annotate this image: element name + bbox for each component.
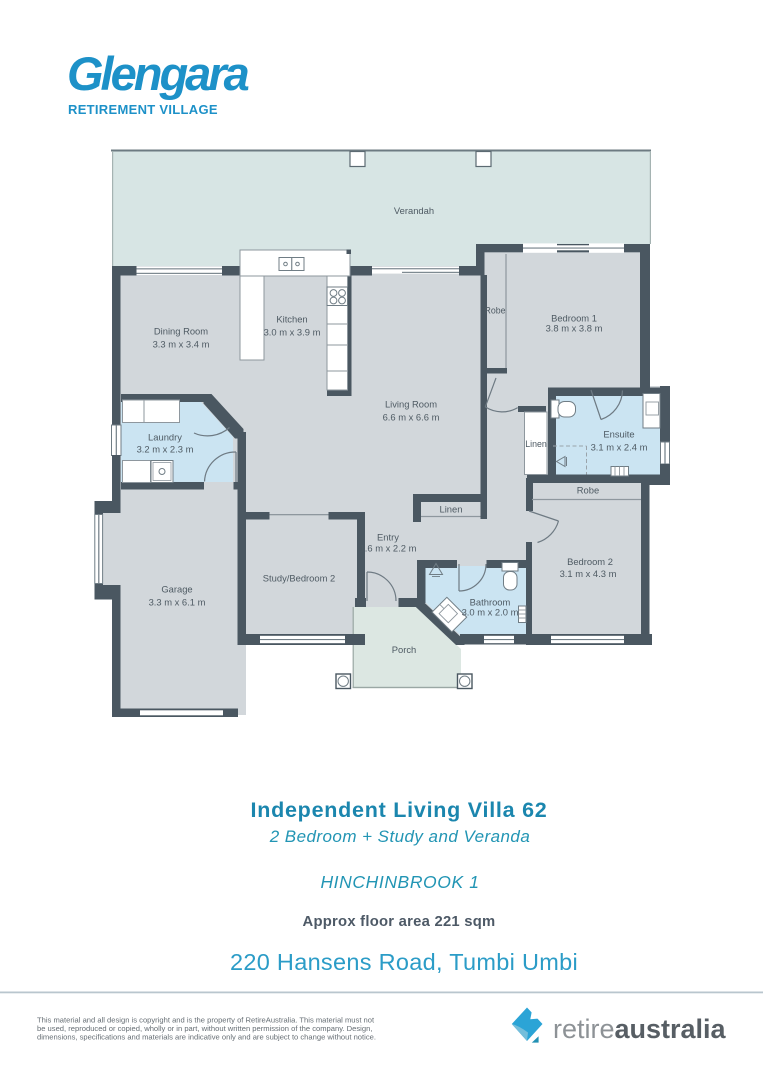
svg-text:Garage: Garage xyxy=(161,584,192,595)
svg-text:HINCHINBROOK 1: HINCHINBROOK 1 xyxy=(320,872,479,892)
svg-text:3.0 m x 3.9 m: 3.0 m x 3.9 m xyxy=(264,327,321,338)
svg-text:2 Bedroom + Study and Veranda: 2 Bedroom + Study and Veranda xyxy=(269,827,531,846)
svg-text:Porch: Porch xyxy=(392,644,417,655)
svg-text:Independent Living Villa 62: Independent Living Villa 62 xyxy=(250,798,547,822)
svg-text:Verandah: Verandah xyxy=(394,205,434,216)
svg-text:Ensuite: Ensuite xyxy=(603,429,634,440)
svg-text:Linen: Linen xyxy=(440,504,463,515)
svg-text:3.3 m x 6.1 m: 3.3 m x 6.1 m xyxy=(149,597,206,608)
svg-text:Dining Room: Dining Room xyxy=(154,326,208,337)
svg-text:220 Hansens Road, Tumbi Umbi: 220 Hansens Road, Tumbi Umbi xyxy=(230,949,578,975)
svg-text:Robe: Robe xyxy=(484,306,505,316)
svg-text:3.3 m x 3.4 m: 3.3 m x 3.4 m xyxy=(153,339,210,350)
svg-text:6.6 m x 6.6 m: 6.6 m x 6.6 m xyxy=(383,412,440,423)
svg-text:Laundry: Laundry xyxy=(148,432,182,443)
svg-text:RETIREMENT VILLAGE: RETIREMENT VILLAGE xyxy=(68,102,218,117)
svg-text:Bedroom 2: Bedroom 2 xyxy=(567,556,613,567)
svg-text:3.2 m x 2.3 m: 3.2 m x 2.3 m xyxy=(137,444,194,455)
svg-text:3.8 m x 3.8 m: 3.8 m x 3.8 m xyxy=(546,323,603,334)
svg-text:Living Room: Living Room xyxy=(385,399,437,410)
svg-text:dimensions, specifications and: dimensions, specifications and materials… xyxy=(37,1033,376,1042)
svg-text:retireaustralia: retireaustralia xyxy=(553,1014,727,1044)
svg-text:Entry: Entry xyxy=(377,532,399,543)
svg-text:3.0 m x 2.0 m: 3.0 m x 2.0 m xyxy=(462,607,519,618)
svg-text:3.1 m x 4.3 m: 3.1 m x 4.3 m xyxy=(560,568,617,579)
svg-text:Approx floor area 221 sqm: Approx floor area 221 sqm xyxy=(303,914,496,930)
svg-text:Study/Bedroom 2: Study/Bedroom 2 xyxy=(263,573,335,584)
svg-text:Robe: Robe xyxy=(577,485,599,496)
svg-text:Kitchen: Kitchen xyxy=(276,314,307,325)
svg-text:Linen: Linen xyxy=(525,439,547,449)
svg-text:1.6 m x 2.2 m: 1.6 m x 2.2 m xyxy=(360,543,417,554)
svg-text:Glengara: Glengara xyxy=(67,47,249,100)
svg-text:3.1 m x 2.4 m: 3.1 m x 2.4 m xyxy=(591,442,648,453)
